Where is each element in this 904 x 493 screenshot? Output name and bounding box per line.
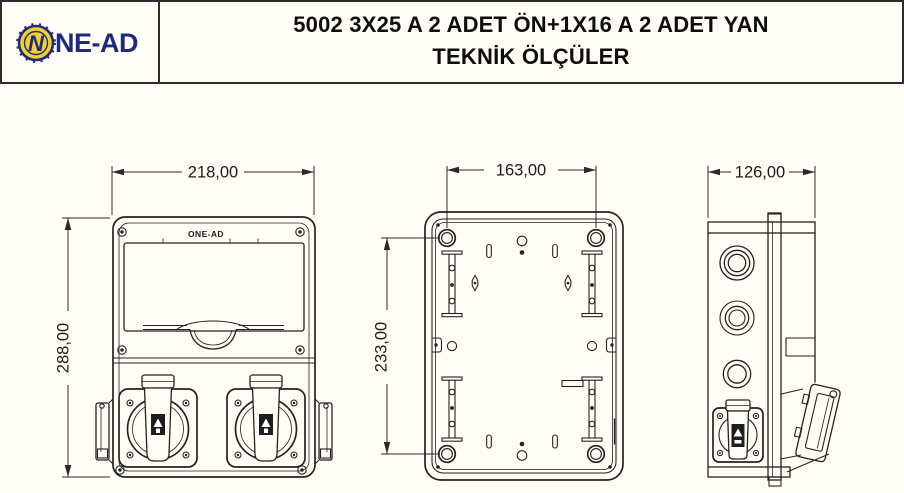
angled-front-socket	[790, 382, 841, 462]
front-right-side-tab	[315, 399, 332, 464]
side-view-drawing: 126,00	[670, 140, 904, 493]
title-cell: 5002 3X25 A 2 ADET ÖN+1X16 A 2 ADET YAN …	[160, 2, 902, 82]
socket-cover-flap	[250, 375, 282, 461]
title-line-1: 5002 3X25 A 2 ADET ÖN+1X16 A 2 ADET YAN	[160, 9, 902, 41]
cable-gland-top	[720, 246, 754, 280]
back-width-dimension: 163,00	[447, 162, 596, 229]
front-view-drawing: 218,00 288,00 ONE-AD	[40, 140, 340, 493]
front-window-lid	[124, 239, 304, 350]
logo-symbol: N	[28, 31, 45, 56]
socket-cover-flap	[142, 375, 174, 461]
brand-logo-cell: N NE-AD	[2, 2, 160, 82]
mounting-view-drawing: 163,00 233,00	[370, 140, 670, 493]
back-width-label: 163,00	[496, 162, 546, 180]
front-left-side-tab	[96, 399, 113, 464]
mounting-slots	[487, 245, 558, 449]
cable-gland-middle	[720, 301, 754, 335]
side-socket	[713, 400, 763, 462]
mounting-holes	[439, 230, 605, 463]
back-height-label: 233,00	[373, 322, 391, 372]
title-line-2: TEKNİK ÖLÇÜLER	[160, 41, 902, 73]
back-height-dimension: 233,00	[373, 238, 441, 454]
cable-gland-bottom	[723, 360, 750, 387]
brand-logo: N NE-AD	[14, 16, 146, 68]
diamond-keys	[472, 276, 571, 291]
logo-circle-icon: N	[18, 25, 55, 62]
center-holes	[517, 236, 527, 460]
mid-edge-features	[432, 338, 616, 352]
mounting-rail-top-left	[442, 251, 462, 317]
front-width-dimension: 218,00	[112, 164, 314, 216]
side-width-dimension: 126,00	[708, 164, 815, 219]
front-socket-left	[119, 375, 197, 467]
socket-cover-flap	[726, 400, 750, 459]
mounting-rail-top-right	[582, 251, 602, 317]
side-body-outline	[708, 213, 829, 486]
side-width-label: 126,00	[735, 164, 785, 182]
logo-text: NE-AD	[55, 28, 138, 58]
datasheet-page: N NE-AD 5002 3X25 A 2 ADET ÖN+1X16 A 2 A…	[0, 0, 904, 493]
front-enclosure-shell	[113, 217, 315, 477]
header: N NE-AD 5002 3X25 A 2 ADET ÖN+1X16 A 2 A…	[0, 0, 904, 84]
front-height-dimension: 288,00	[55, 218, 111, 477]
mounting-rail-bottom-left	[442, 377, 462, 441]
front-brand-marking: ONE-AD	[188, 229, 224, 239]
front-height-label: 288,00	[55, 323, 73, 373]
front-socket-right	[227, 375, 305, 467]
front-width-label: 218,00	[188, 164, 238, 182]
mounting-rail-bottom-right	[562, 377, 602, 441]
